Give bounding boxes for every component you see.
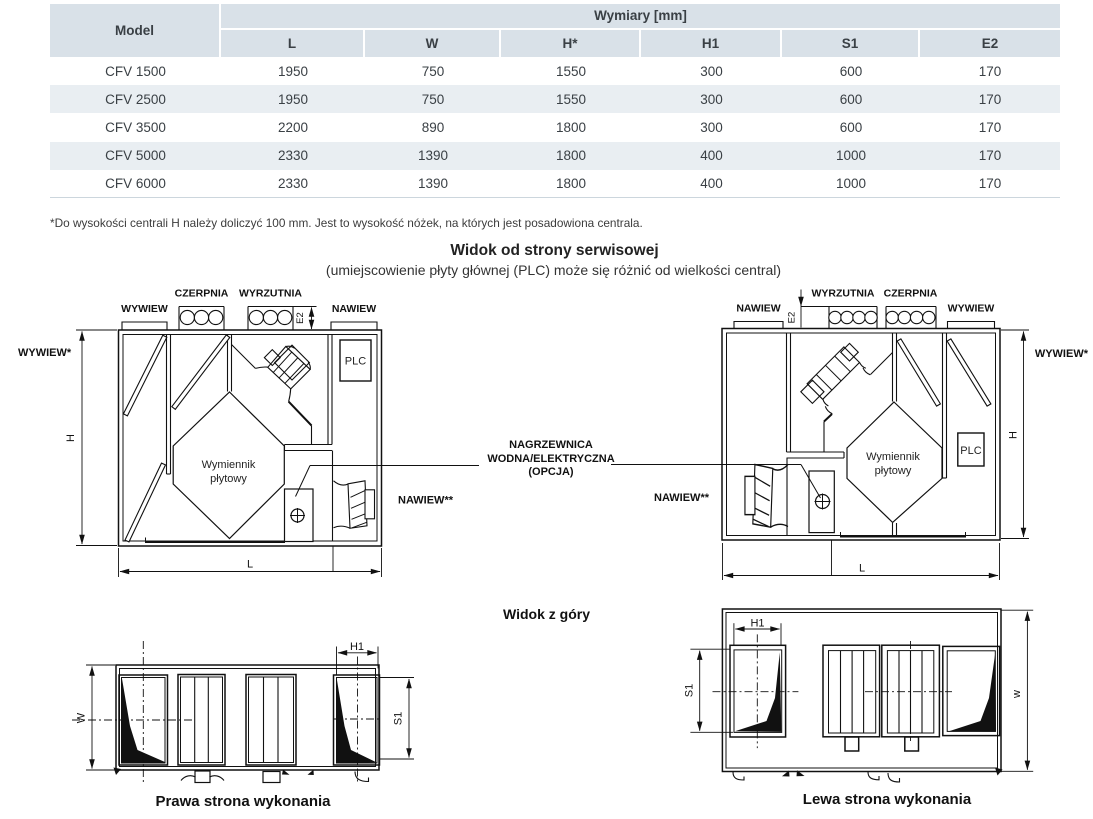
svg-text:WYWIEW*: WYWIEW* — [1035, 348, 1089, 360]
svg-text:PLC: PLC — [960, 445, 981, 457]
svg-text:PLC: PLC — [345, 356, 366, 368]
svg-text:E2: E2 — [787, 312, 798, 324]
svg-text:H1: H1 — [750, 618, 764, 630]
svg-text:H1: H1 — [350, 641, 364, 653]
svg-text:W: W — [76, 712, 88, 723]
svg-text:CZERPNIA: CZERPNIA — [884, 288, 938, 300]
svg-text:Wymiennik: Wymiennik — [202, 459, 256, 471]
svg-text:S1: S1 — [393, 712, 405, 725]
svg-text:NAWIEW: NAWIEW — [332, 303, 376, 315]
svg-text:NAWIEW: NAWIEW — [736, 303, 780, 315]
svg-text:L: L — [247, 559, 253, 571]
svg-text:WYWIEW*: WYWIEW* — [18, 347, 72, 359]
svg-text:H: H — [65, 434, 77, 442]
svg-text:WYWIEW: WYWIEW — [948, 303, 995, 315]
svg-text:płytowy: płytowy — [210, 473, 247, 485]
svg-text:WYRZUTNIA: WYRZUTNIA — [812, 288, 875, 300]
svg-text:NAWIEW**: NAWIEW** — [654, 492, 710, 504]
svg-text:WYRZUTNIA: WYRZUTNIA — [239, 288, 302, 300]
svg-text:NAWIEW**: NAWIEW** — [398, 495, 454, 507]
svg-text:Wymiennik: Wymiennik — [866, 451, 920, 463]
svg-text:E2: E2 — [295, 312, 306, 324]
svg-text:WYWIEW: WYWIEW — [121, 303, 168, 315]
svg-text:CZERPNIA: CZERPNIA — [175, 288, 229, 300]
svg-text:w: w — [1011, 690, 1023, 699]
svg-text:L: L — [859, 563, 865, 575]
svg-text:S1: S1 — [684, 684, 696, 697]
svg-text:H: H — [1008, 431, 1020, 439]
svg-text:płytowy: płytowy — [875, 465, 912, 477]
